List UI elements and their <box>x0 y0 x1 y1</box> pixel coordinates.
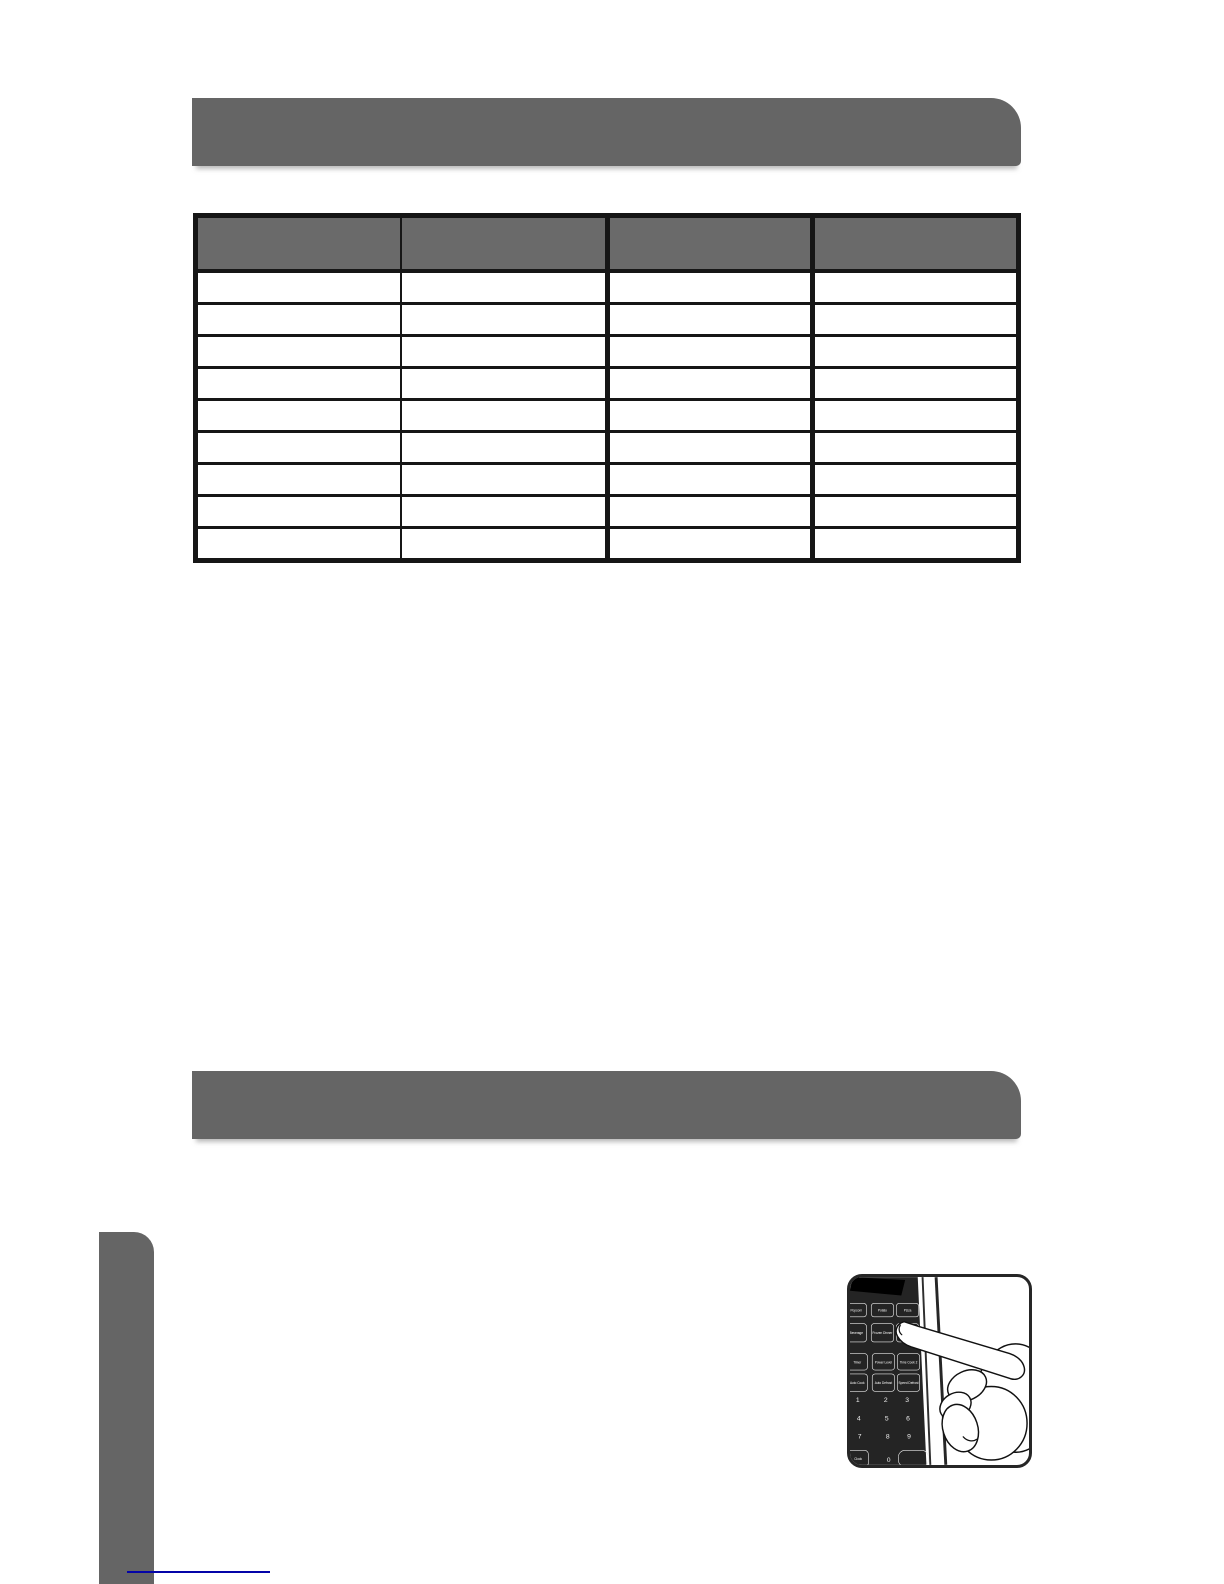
table-cell <box>813 304 1019 336</box>
table-row <box>196 368 1019 400</box>
table-cell <box>196 496 402 528</box>
keypad-button-label: Power Level <box>875 1360 893 1364</box>
table-cell <box>607 464 813 496</box>
keypad-digit: 4 <box>857 1415 861 1422</box>
footer-link[interactable] <box>127 1571 270 1573</box>
table-cell <box>607 336 813 368</box>
table-cell <box>196 464 402 496</box>
keypad-digit: 7 <box>858 1434 862 1441</box>
table-row <box>196 528 1019 561</box>
table-cell <box>196 368 402 400</box>
keypad-button-label: Potato <box>878 1308 887 1312</box>
keypad-button-label: Beverage <box>850 1331 863 1335</box>
keypad-digit: 8 <box>886 1434 890 1441</box>
keypad-button-label: Pizza <box>904 1308 912 1312</box>
table-cell <box>607 432 813 464</box>
keypad-digit: 1 <box>856 1397 860 1404</box>
table-cell <box>607 368 813 400</box>
table-cell <box>813 368 1019 400</box>
table-header <box>196 216 1019 272</box>
table-cell <box>401 528 607 561</box>
table-cell <box>401 432 607 464</box>
table-cell <box>813 432 1019 464</box>
table-cell <box>813 336 1019 368</box>
table-cell <box>401 368 607 400</box>
keypad-digit: 0 <box>887 1457 891 1464</box>
keypad-button-label: Clock <box>854 1457 862 1461</box>
keypad-button-label: Popcorn <box>850 1308 862 1312</box>
keypad-button-label: Frozen Dinner <box>873 1331 893 1335</box>
keypad-button-label: Auto Cook <box>850 1381 865 1385</box>
table-row <box>196 271 1019 304</box>
keypad-digit: 9 <box>907 1434 911 1441</box>
table-cell <box>196 304 402 336</box>
section-header-bar-1 <box>192 98 1021 166</box>
table-cell <box>196 528 402 561</box>
table-cell <box>607 528 813 561</box>
keypad-button-label: Timer <box>853 1360 861 1364</box>
table-cell <box>401 464 607 496</box>
table-header-cell <box>196 216 402 272</box>
table-cell <box>196 432 402 464</box>
manual-page: Popcorn Potato Pizza Beverage Frozen Din… <box>0 0 1224 1584</box>
keypad-digit: 5 <box>885 1415 889 1422</box>
keypad-digit: 3 <box>905 1397 909 1404</box>
table-cell <box>196 400 402 432</box>
keypad-button-label: Speed Defrost <box>899 1381 919 1385</box>
section-header-bar-2 <box>192 1071 1021 1139</box>
microwave-keypad-figure: Popcorn Potato Pizza Beverage Frozen Din… <box>850 1277 1029 1465</box>
table-cell <box>607 304 813 336</box>
table-cell <box>401 336 607 368</box>
table-cell <box>401 304 607 336</box>
table-cell <box>607 271 813 304</box>
table-cell <box>196 271 402 304</box>
table-header-row <box>196 216 1019 272</box>
table-row <box>196 464 1019 496</box>
table-cell <box>401 400 607 432</box>
keypad-digit: 6 <box>906 1415 910 1422</box>
table-header-cell <box>607 216 813 272</box>
table-cell <box>813 528 1019 561</box>
table-cell <box>607 400 813 432</box>
table-body <box>196 271 1019 561</box>
table-cell <box>196 336 402 368</box>
keypad-button-label: Auto Defrost <box>875 1381 893 1385</box>
table-cell <box>813 464 1019 496</box>
table-cell <box>813 496 1019 528</box>
keypad-digit: 2 <box>884 1397 888 1404</box>
table-row <box>196 400 1019 432</box>
table-row <box>196 496 1019 528</box>
reference-table <box>193 213 1021 563</box>
table-row <box>196 304 1019 336</box>
table-row <box>196 336 1019 368</box>
chapter-edge-tab <box>99 1232 154 1584</box>
table-cell <box>401 496 607 528</box>
table-cell <box>607 496 813 528</box>
table-cell <box>813 271 1019 304</box>
keypad-button-label: Time Cook 2 <box>900 1360 918 1364</box>
table-cell <box>401 271 607 304</box>
table-header-cell <box>401 216 607 272</box>
table-header-cell <box>813 216 1019 272</box>
table-cell <box>813 400 1019 432</box>
table-row <box>196 432 1019 464</box>
press-button-illustration: Popcorn Potato Pizza Beverage Frozen Din… <box>847 1274 1032 1468</box>
